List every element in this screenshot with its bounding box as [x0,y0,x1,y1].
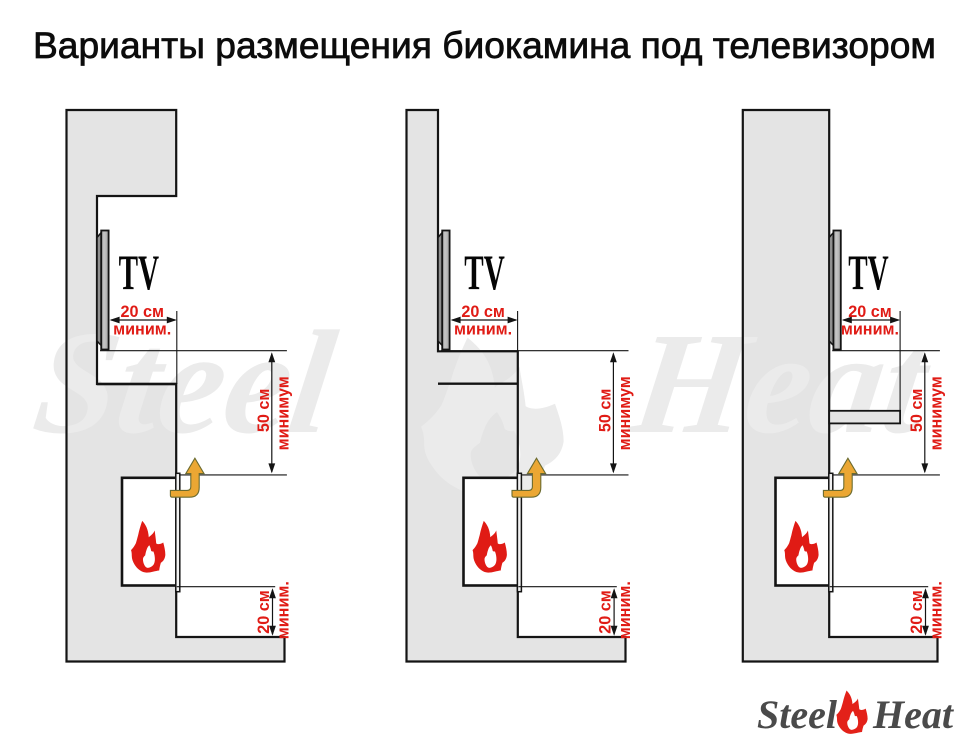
svg-text:20 см: 20 см [596,590,614,633]
svg-text:минимум: минимум [927,376,945,450]
svg-text:Steel: Steel [757,692,838,737]
svg-text:20 см: 20 см [908,590,926,633]
svg-text:миним.: миним. [841,321,899,339]
svg-text:миним.: миним. [454,321,512,339]
svg-text:20 см: 20 см [848,303,891,321]
svg-text:50 см: 50 см [255,389,273,432]
svg-text:20 см: 20 см [461,303,504,321]
svg-text:миним.: миним. [927,581,945,639]
svg-text:20 см: 20 см [120,303,163,321]
svg-text:миним.: миним. [113,321,171,339]
svg-text:миним.: миним. [274,581,292,639]
svg-text:минимум: минимум [274,376,292,450]
svg-text:TV: TV [848,245,889,300]
svg-text:20 см: 20 см [255,590,273,633]
svg-text:Heat: Heat [872,692,955,737]
svg-text:50 см: 50 см [596,389,614,432]
svg-text:TV: TV [464,245,505,300]
svg-text:Steel: Steel [25,301,345,465]
svg-text:50 см: 50 см [908,389,926,432]
svg-text:миним.: миним. [616,581,634,639]
svg-text:TV: TV [119,245,160,300]
svg-text:Варианты размещения биокамина: Варианты размещения биокамина под телеви… [33,24,936,66]
svg-text:минимум: минимум [616,376,634,450]
